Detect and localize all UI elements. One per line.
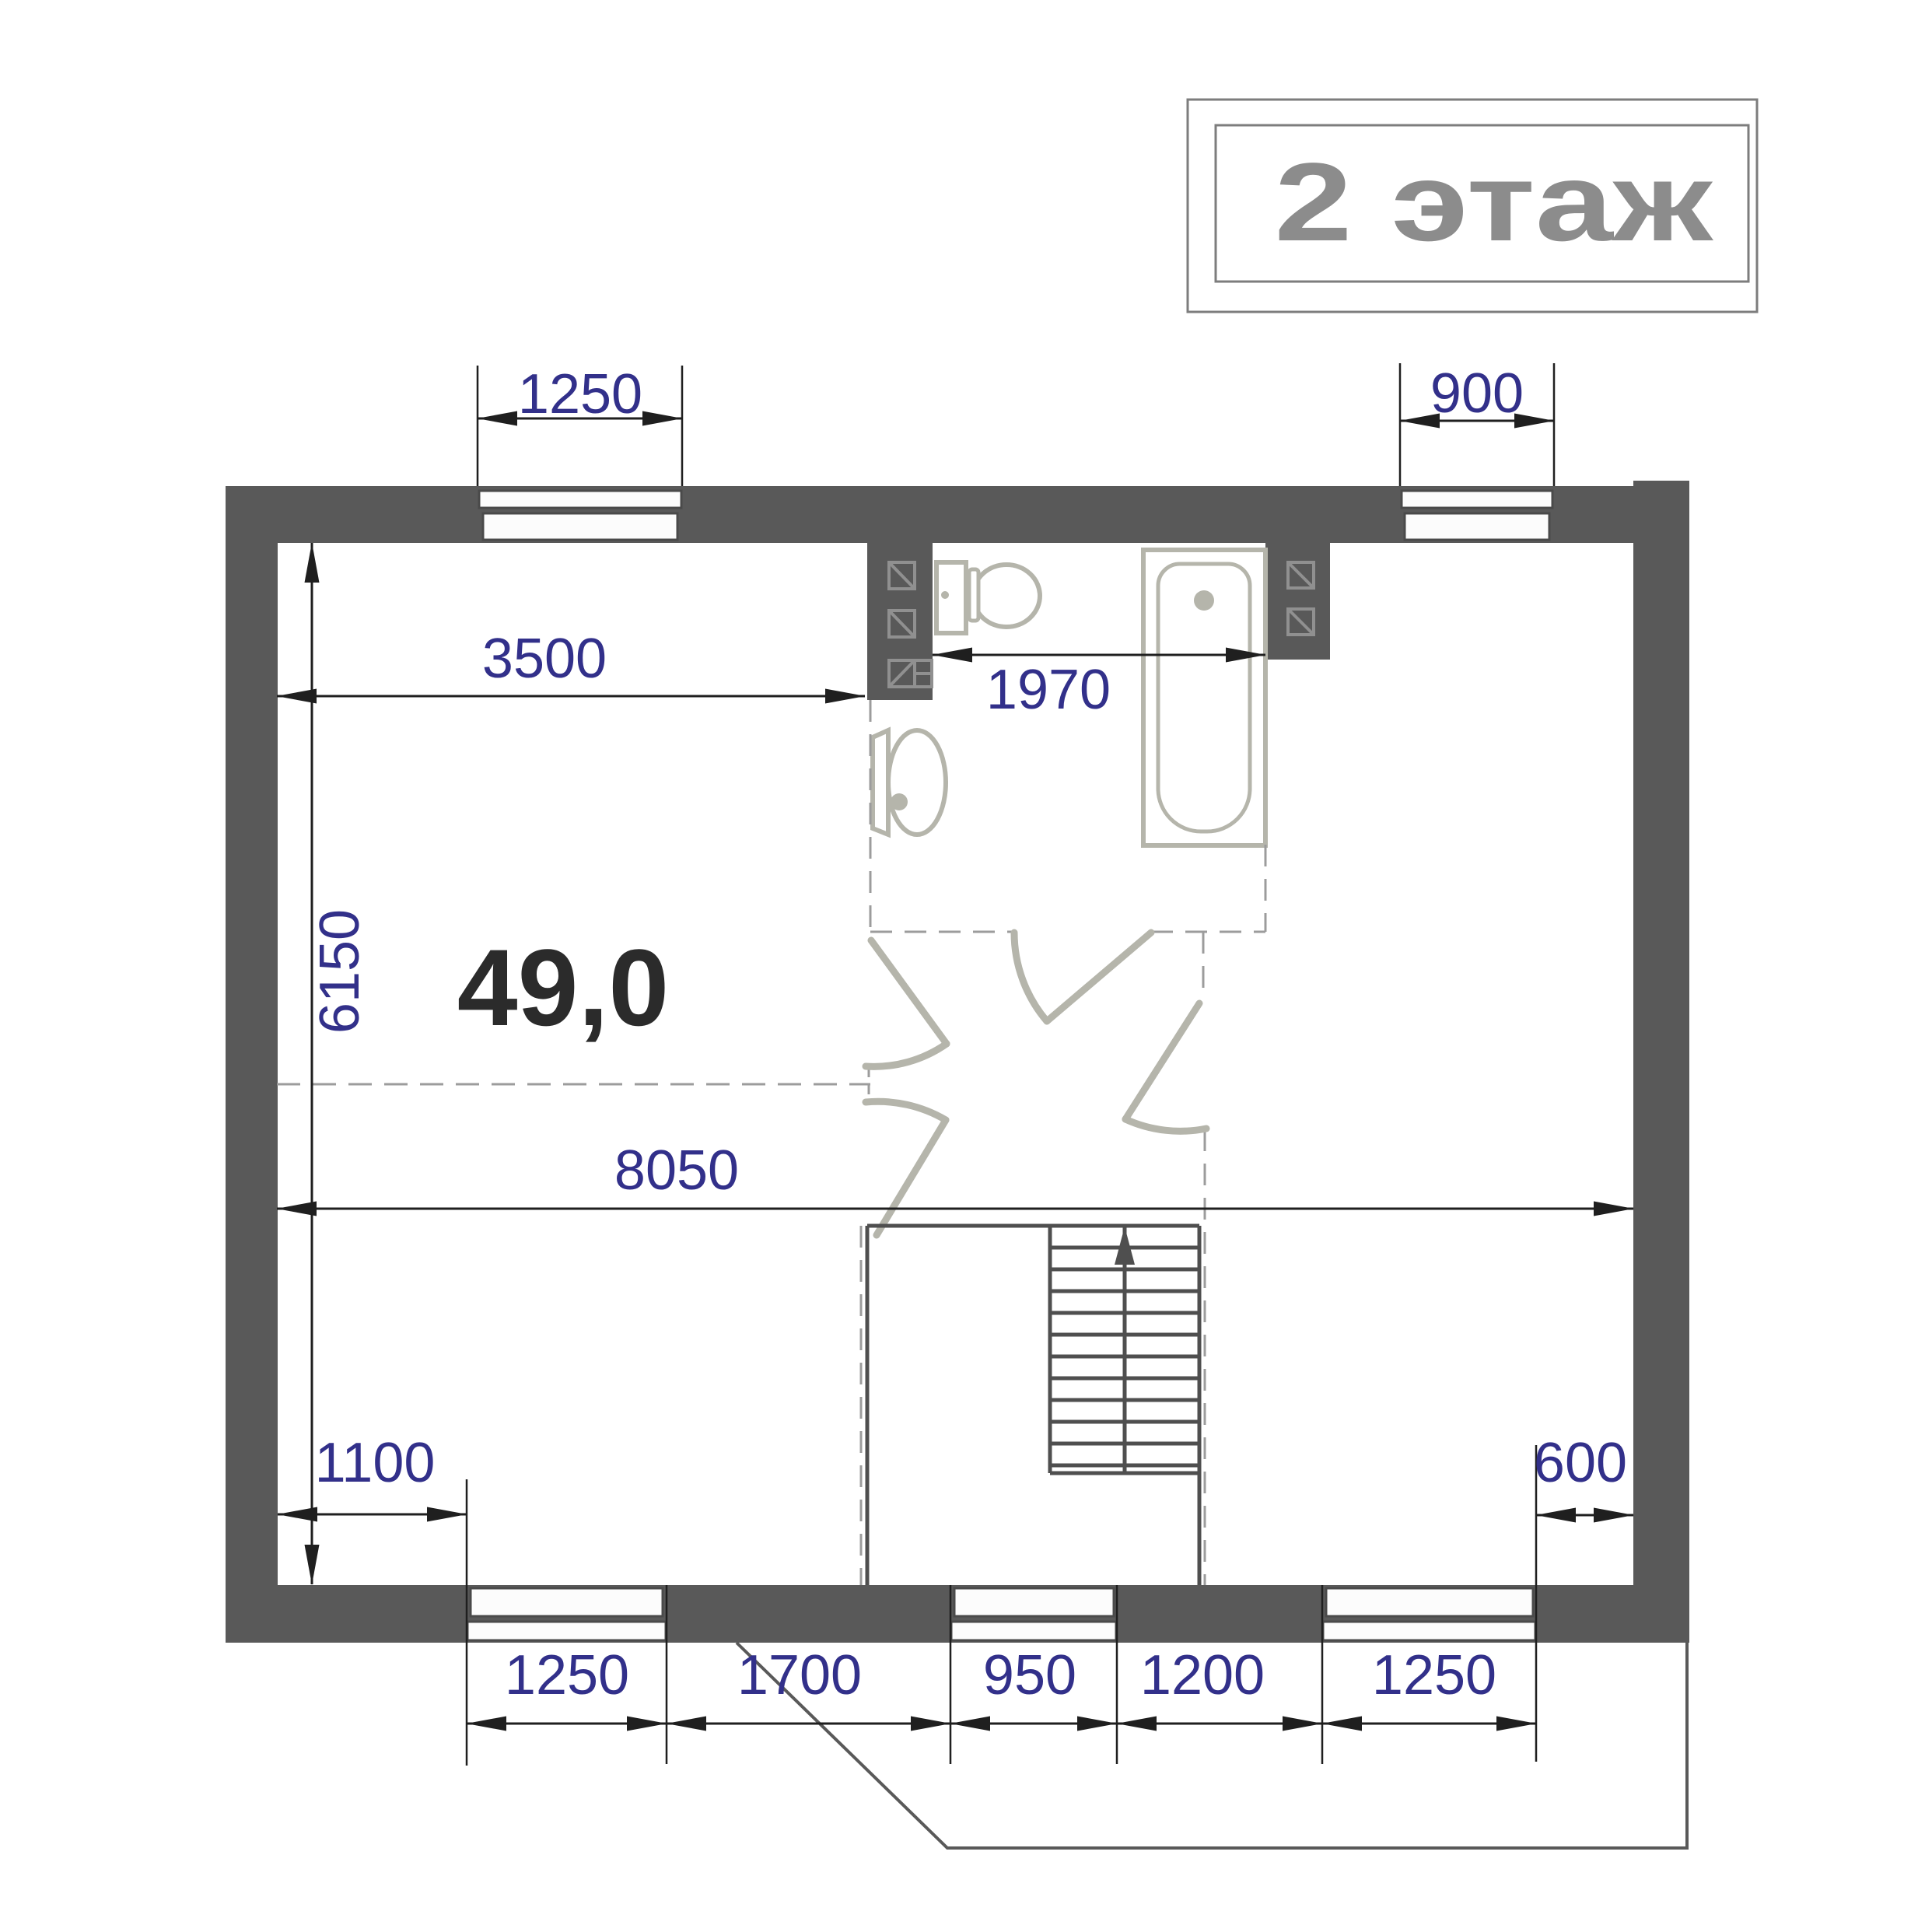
svg-text:49,0: 49,0 bbox=[457, 926, 669, 1048]
svg-text:1100: 1100 bbox=[315, 1432, 436, 1494]
svg-text:1970: 1970 bbox=[986, 659, 1111, 721]
svg-text:2 этаж: 2 этаж bbox=[1275, 141, 1714, 264]
svg-text:1700: 1700 bbox=[737, 1644, 862, 1706]
svg-text:1250: 1250 bbox=[505, 1644, 629, 1706]
svg-text:6150: 6150 bbox=[309, 909, 371, 1034]
svg-text:900: 900 bbox=[1430, 362, 1524, 425]
svg-text:1250: 1250 bbox=[518, 363, 642, 425]
svg-text:8050: 8050 bbox=[614, 1139, 739, 1202]
svg-text:950: 950 bbox=[983, 1644, 1076, 1706]
svg-text:600: 600 bbox=[1534, 1432, 1627, 1494]
svg-text:3500: 3500 bbox=[482, 628, 607, 690]
svg-text:1250: 1250 bbox=[1372, 1644, 1496, 1706]
svg-text:1200: 1200 bbox=[1140, 1644, 1265, 1706]
